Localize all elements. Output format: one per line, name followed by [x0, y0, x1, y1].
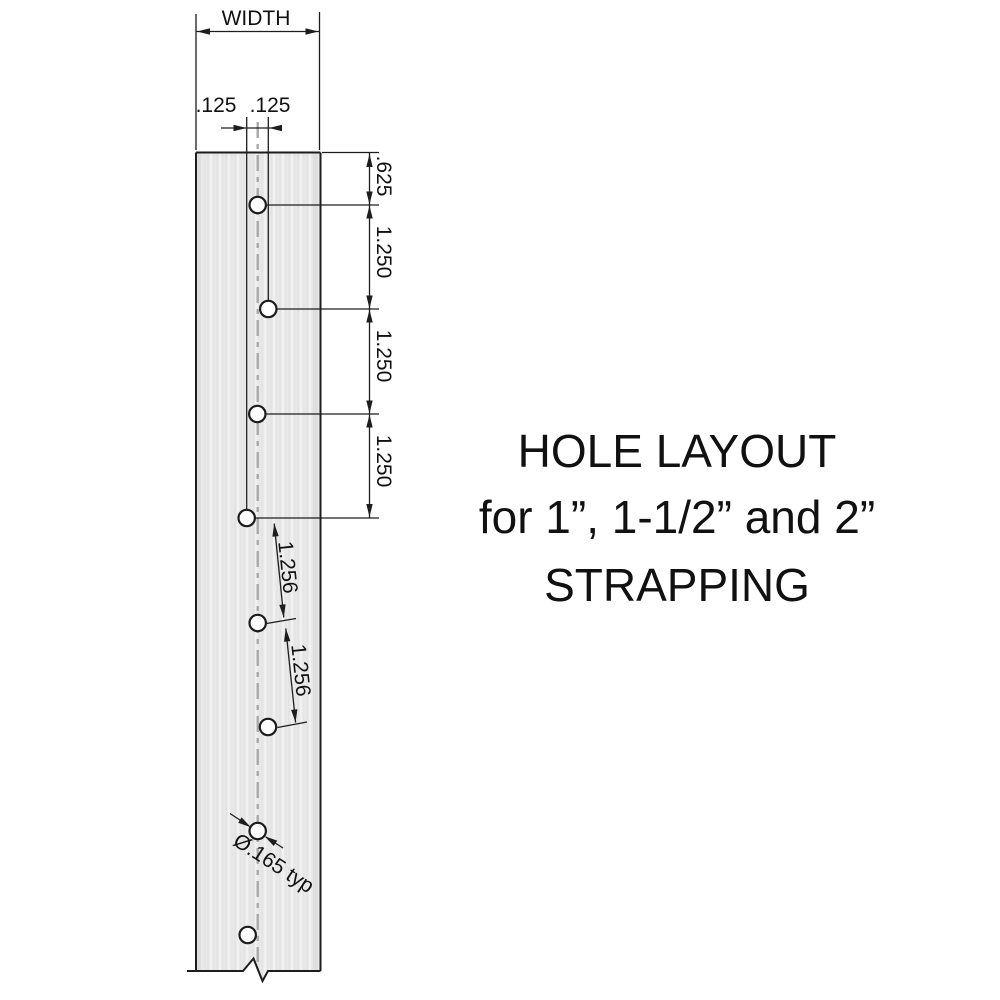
strap-hole	[250, 823, 266, 839]
offset-right-label: .125	[250, 94, 291, 117]
arrowhead	[366, 192, 372, 205]
title-block: HOLE LAYOUT for 1”, 1-1/2” and 2” STRAPP…	[479, 425, 875, 611]
arrowhead	[366, 206, 372, 219]
pitch2-label: 1.250	[372, 330, 395, 383]
title-line-1: HOLE LAYOUT	[518, 425, 837, 477]
title-line-2: for 1”, 1-1/2” and 2”	[479, 491, 875, 543]
strap-hole	[260, 301, 276, 317]
arrowhead	[366, 154, 372, 167]
strap-hole	[239, 510, 255, 526]
title-line-3: STRAPPING	[544, 559, 810, 611]
strap-drawing-canvas: WIDTH .125 .125 .625 1.250 1.250 1.250	[0, 0, 1000, 1000]
arrowhead	[197, 28, 210, 34]
drawing-page: WIDTH .125 .125 .625 1.250 1.250 1.250	[0, 0, 1000, 1000]
edge-offset-dimension: .125 .125	[196, 94, 291, 131]
strap-hole	[240, 927, 256, 943]
arrowhead	[366, 296, 372, 309]
arrowhead	[366, 415, 372, 428]
pitch1-label: 1.250	[372, 226, 395, 279]
strap-hole	[249, 406, 265, 422]
strip-right-shading	[313, 153, 320, 970]
arrowhead	[366, 310, 372, 323]
strap-hole	[260, 719, 276, 735]
strap-hole	[250, 197, 266, 213]
arrowhead	[306, 28, 319, 34]
width-dim-label: WIDTH	[222, 7, 291, 30]
pitch3-label: 1.250	[372, 435, 395, 488]
offset-left-label: .125	[196, 94, 237, 117]
arrowhead	[269, 125, 282, 131]
first-hole-dim-label: .625	[372, 156, 395, 197]
arrowhead	[366, 504, 372, 517]
arrowhead	[366, 401, 372, 414]
strip-left-shading	[196, 153, 203, 970]
strap-hole	[250, 615, 266, 631]
arrowhead	[234, 125, 247, 131]
